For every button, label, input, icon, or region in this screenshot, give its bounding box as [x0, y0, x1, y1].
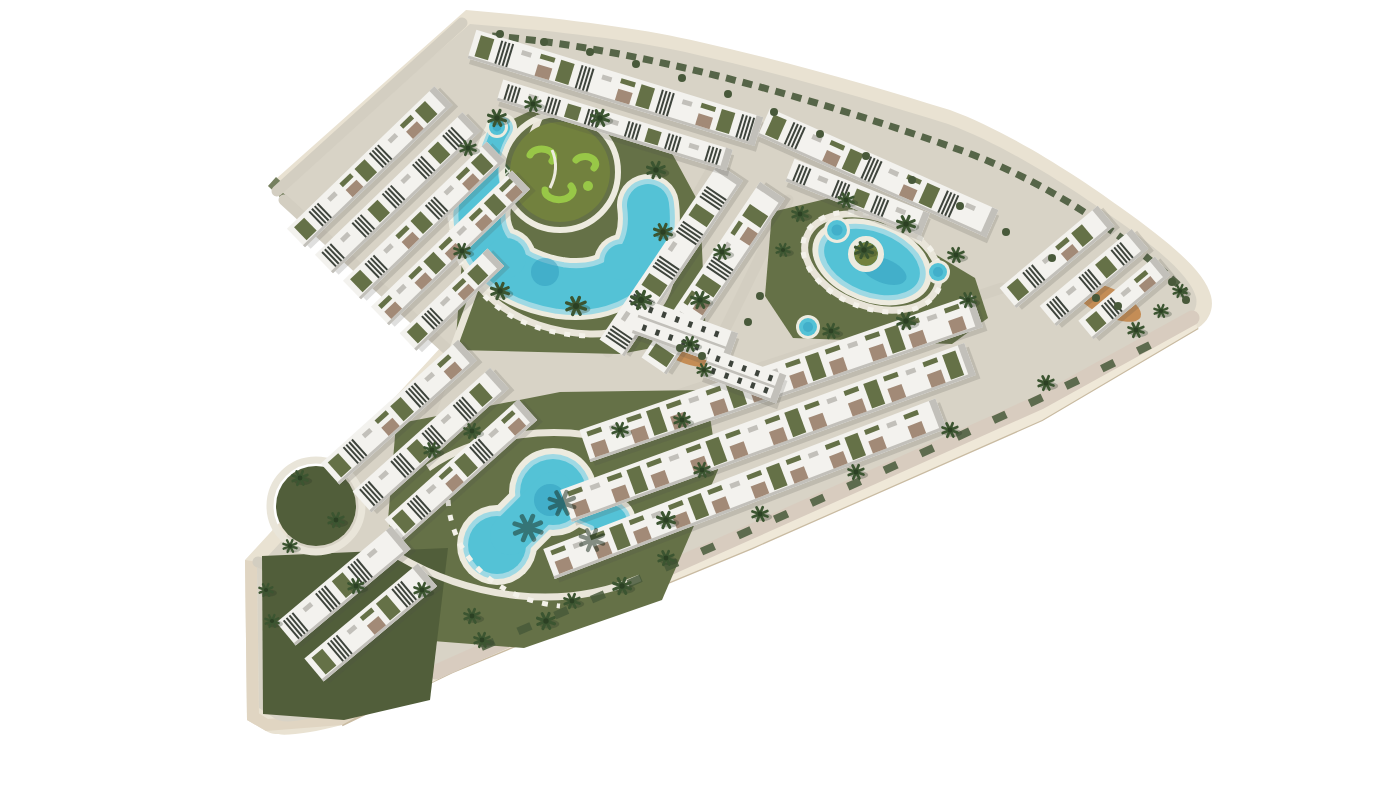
render-canvas	[0, 0, 1400, 788]
bush-icon	[1182, 296, 1190, 304]
island-lawn	[510, 122, 610, 222]
bush-icon	[678, 74, 686, 82]
spa-pool	[926, 260, 950, 284]
bush-icon	[676, 344, 684, 352]
bush-icon	[744, 318, 752, 326]
bush-icon	[908, 176, 916, 184]
spa-pool	[796, 315, 820, 339]
platform-lower-left-face	[245, 560, 259, 720]
bush-icon	[724, 90, 732, 98]
lagoon-deep-spot	[531, 258, 559, 286]
bush-icon	[632, 60, 640, 68]
bush-icon	[1002, 228, 1010, 236]
bush-icon	[586, 48, 594, 56]
bush-icon	[496, 30, 504, 38]
bush-icon	[770, 108, 778, 116]
green-squiggle-dot	[583, 181, 593, 191]
bush-icon	[1048, 254, 1056, 262]
bush-icon	[816, 130, 824, 138]
bush-icon	[1092, 294, 1100, 302]
bush-icon	[1168, 278, 1176, 286]
lagoon-lobe-water-2	[604, 244, 640, 280]
bush-icon	[956, 202, 964, 210]
bush-icon	[540, 38, 548, 46]
site-plan-render	[0, 0, 1400, 788]
bush-icon	[862, 152, 870, 160]
bush-icon	[698, 352, 706, 360]
spa-pool	[824, 217, 850, 243]
bush-icon	[756, 292, 764, 300]
bush-icon	[1114, 302, 1122, 310]
